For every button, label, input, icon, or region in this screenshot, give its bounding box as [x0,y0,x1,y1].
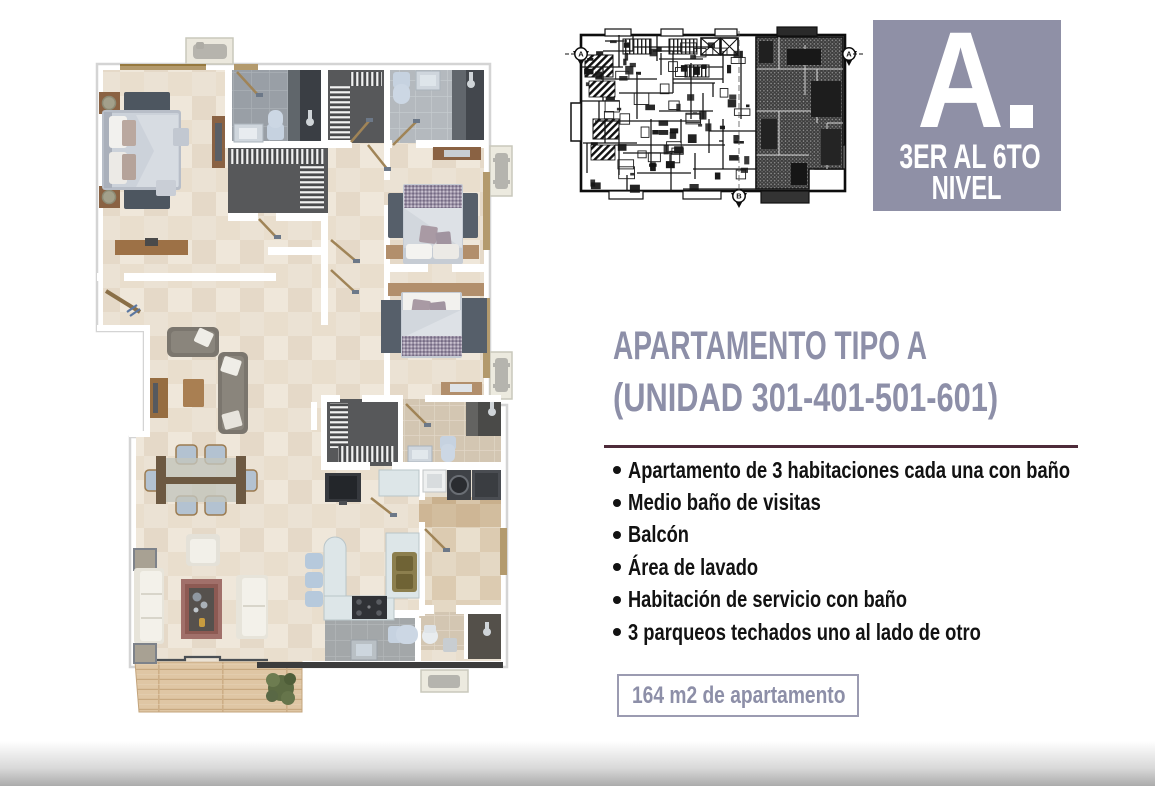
svg-text:A: A [578,50,584,59]
svg-text:A: A [846,50,852,59]
svg-text:B: B [736,192,742,201]
